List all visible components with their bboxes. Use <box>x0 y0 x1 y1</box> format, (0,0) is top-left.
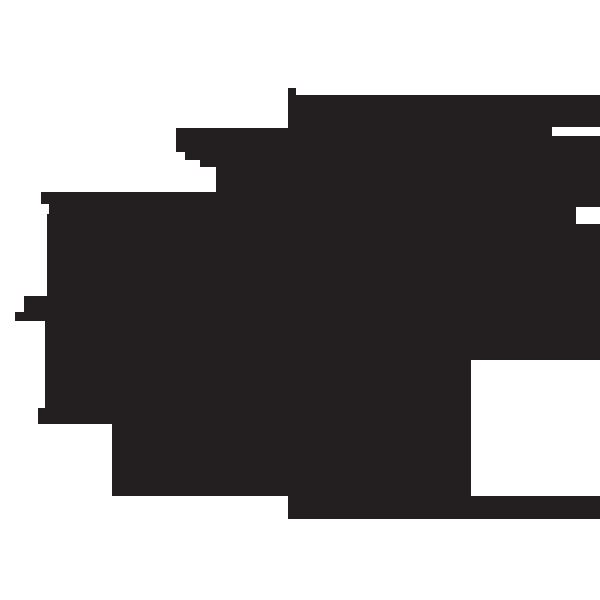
silhouette-svg <box>0 0 600 600</box>
scene-canvas <box>0 0 600 600</box>
